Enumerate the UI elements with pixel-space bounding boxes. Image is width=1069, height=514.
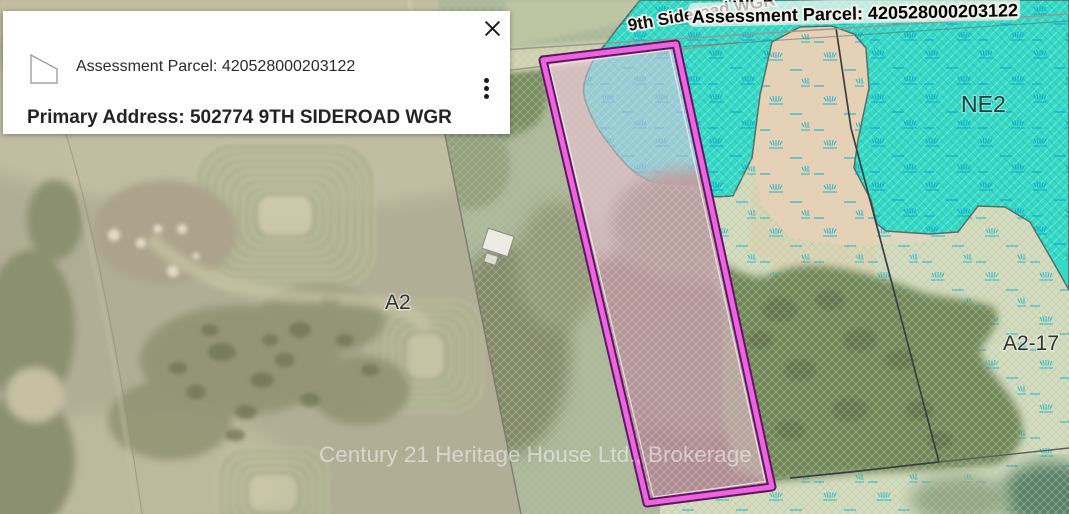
svg-text:NE2: NE2 [961, 91, 1006, 117]
svg-text:A2: A2 [385, 291, 411, 314]
svg-text:A2-17: A2-17 [1003, 332, 1059, 355]
